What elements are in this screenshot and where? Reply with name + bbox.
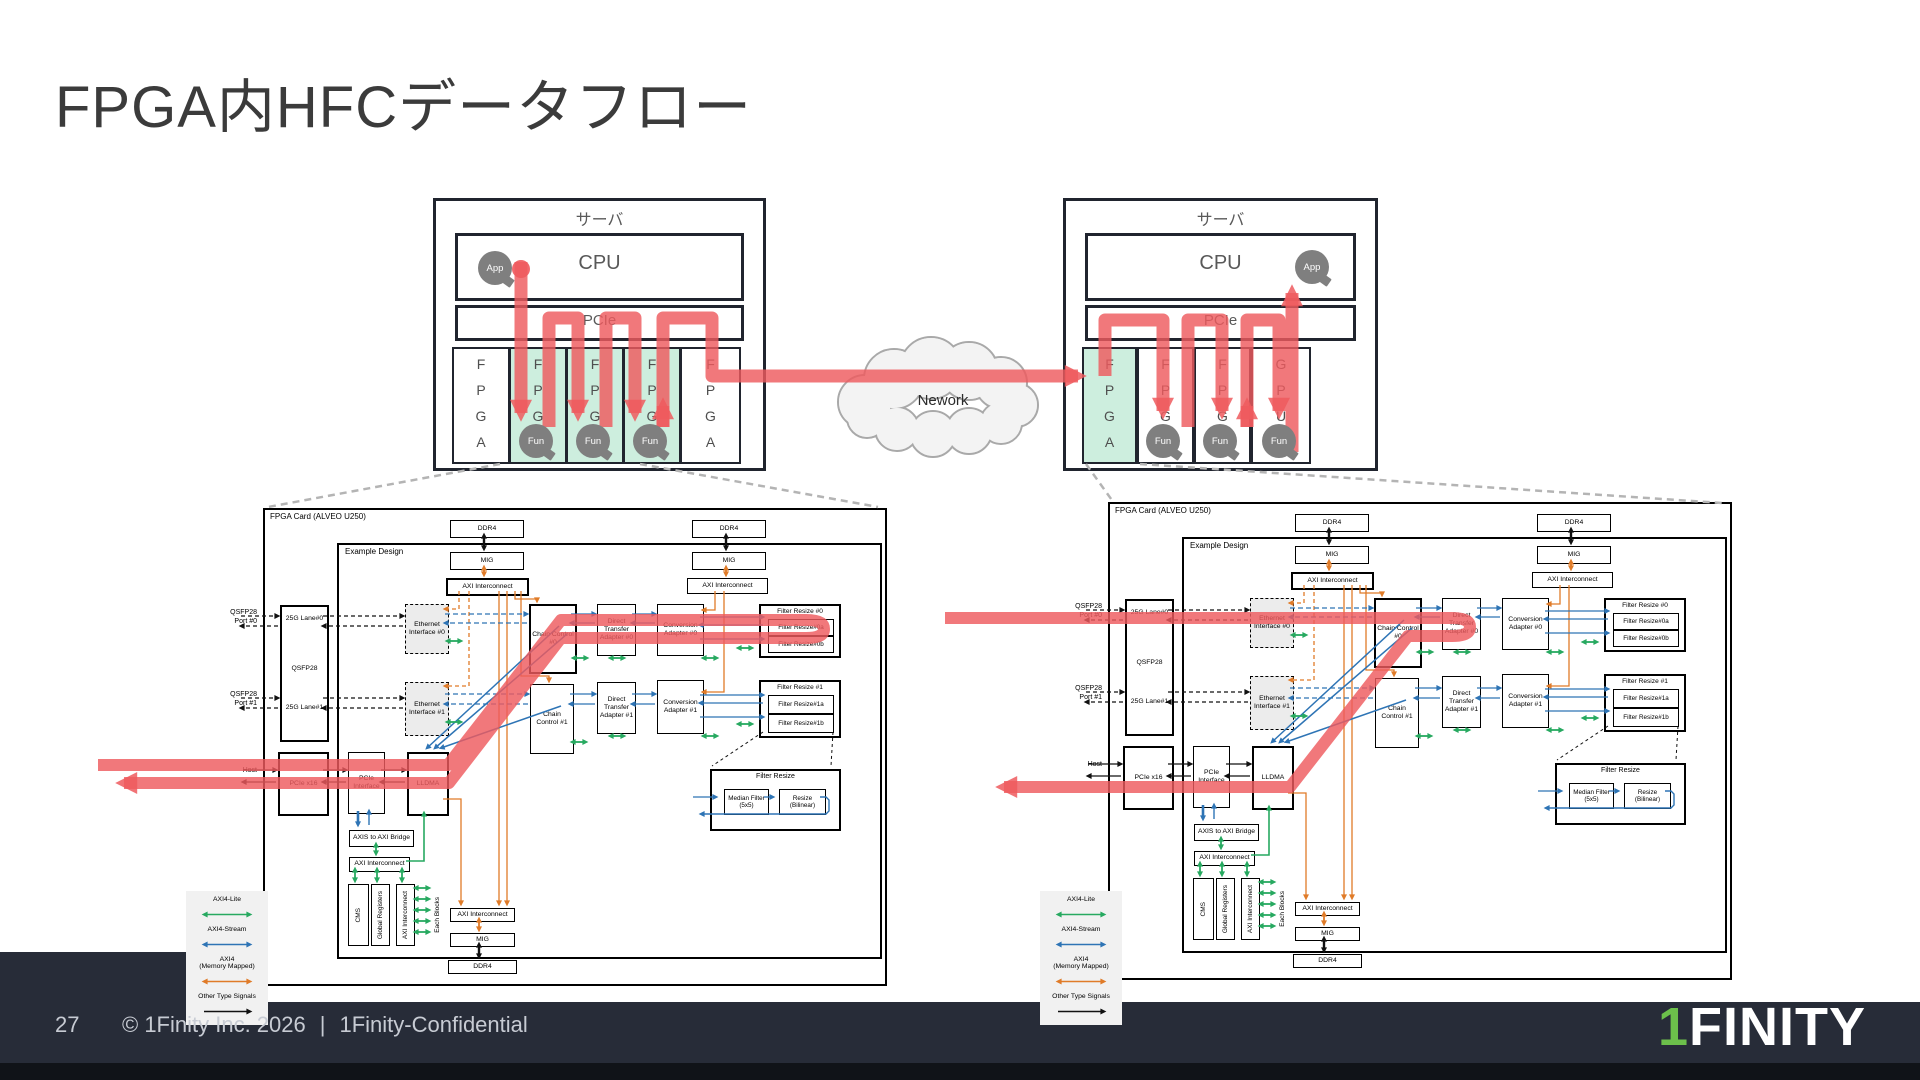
block-label: AXI Interconnect: [701, 582, 753, 590]
block-label: Chain Control #0: [1376, 625, 1420, 641]
block-label: MIG: [1567, 551, 1582, 559]
block-eth1: Ethernet Interface #1: [1250, 676, 1294, 730]
fun-label: Fun: [585, 436, 601, 447]
fun-bubble-left-2: Fun: [633, 424, 667, 458]
card-label: F P G A: [1084, 349, 1135, 455]
block-qsfp: 25G Lane#0QSFP2825G Lane#1: [1125, 599, 1174, 736]
block-label: AXIS to AXI Bridge: [1197, 828, 1256, 836]
block-label: AXI Interconnect: [1198, 854, 1250, 862]
legend-arrow-mo: [1052, 973, 1110, 991]
qsfp-port1-label: QSFP28 Port #1: [201, 690, 257, 712]
block-eth0: Ethernet Interface #0: [405, 604, 449, 654]
block-axibot: AXI Interconnect: [1295, 902, 1360, 916]
fun-label: Fun: [642, 436, 658, 447]
block-mig_a: MIG: [1295, 546, 1369, 564]
block-greg: Global Registers: [1216, 878, 1235, 940]
qsfp-lane0-label: 25G Lane#0: [1127, 609, 1172, 617]
qsfp-port1-label: QSFP28 Port #1: [1046, 684, 1102, 706]
legend-item-label: AXI4-Stream: [1062, 926, 1101, 934]
qsfp-label: QSFP28: [282, 665, 327, 673]
block-dta0: Direct Transfer Adapter #0: [597, 604, 636, 656]
block-ca0: Conversion Adapter #0: [657, 604, 704, 656]
sub-block-a: Filter Resize#0a: [1613, 613, 1679, 630]
block-fr0: Filter Resize #0Filter Resize#0aFilter R…: [1604, 598, 1686, 652]
median-filter-block: Median Filter (5x5): [1569, 783, 1614, 809]
block-axih: AXI Interconnect: [349, 857, 410, 872]
pcie-box-right: PCIe: [1085, 305, 1356, 341]
block-detail: Filter ResizeMedian Filter (5x5)Resize (…: [1555, 763, 1686, 825]
pcie-label: PCIe: [458, 312, 741, 329]
block-pcieif: PCIe Interface: [348, 752, 385, 814]
block-bridge: AXIS to AXI Bridge: [1194, 824, 1259, 841]
block-pciex16: PCIe x16: [1123, 746, 1174, 810]
block-label: Direct Transfer Adapter #0: [1443, 612, 1480, 636]
sub-block-b: Filter Resize#1b: [768, 714, 834, 733]
block-eachblk: Each Blocks: [1276, 880, 1290, 938]
block-axiv: AXI Interconnect: [396, 884, 415, 946]
filter-resize-title: Filter Resize #0: [761, 608, 839, 616]
block-axih: AXI Interconnect: [1194, 851, 1255, 866]
card-label: G P U: [1253, 349, 1309, 429]
block-axi_b: AXI Interconnect: [1532, 572, 1613, 588]
block-label: Conversion Adapter #1: [1503, 693, 1548, 709]
block-label: Ethernet Interface #1: [1251, 695, 1293, 711]
fpga-card-title: FPGA Card (ALVEO U250): [1115, 506, 1211, 515]
fpga-card-title: FPGA Card (ALVEO U250): [270, 512, 366, 521]
accelerator-card-left-4: F P G A: [680, 347, 741, 464]
pcie-box-left: PCIe: [455, 305, 744, 341]
footer-text: © 1Finity Inc. 2026 | 1Finity-Confidenti…: [122, 1012, 528, 1038]
sub-block-b: Filter Resize#0b: [1613, 630, 1679, 647]
slide-canvas: FPGA内HFCデータフロー サーバCPUPCIeF P G AF P G AF…: [0, 0, 1920, 1080]
block-fr0: Filter Resize #0Filter Resize#0aFilter R…: [759, 604, 841, 658]
block-ddr4_a: DDR4: [450, 520, 524, 538]
filter-resize-detail-title: Filter Resize: [1557, 767, 1684, 775]
block-label: Chain Control #1: [531, 711, 573, 727]
block-label: PCIe Interface: [1194, 769, 1229, 785]
app-bubble-left: App: [478, 251, 512, 285]
block-pcieif: PCIe Interface: [1193, 746, 1230, 808]
host-label: Host: [1060, 760, 1102, 772]
block-label: MIG: [480, 557, 495, 565]
vertical-label: Global Registers: [377, 891, 385, 939]
diagram-stage: サーバCPUPCIeF P G AF P G AF P G AF P G AF …: [0, 0, 1920, 1080]
block-ddr4_b: DDR4: [692, 520, 766, 538]
block-mig_b: MIG: [692, 552, 766, 570]
resize-block: Resize (Bilinear): [1624, 783, 1671, 809]
block-label: DDR4: [719, 525, 740, 533]
block-label: Ethernet Interface #0: [1251, 615, 1293, 631]
app-label: App: [1304, 262, 1321, 273]
block-eth1: Ethernet Interface #1: [405, 682, 449, 736]
block-cms: CMS: [348, 884, 369, 946]
app-injection-dot: [512, 260, 530, 278]
block-label: DDR4: [472, 963, 493, 971]
block-label: Chain Control #1: [1376, 705, 1418, 721]
block-qsfp: 25G Lane#0QSFP2825G Lane#1: [280, 605, 329, 742]
vertical-label: AXI Interconnect: [1247, 885, 1255, 933]
copyright-text: © 1Finity Inc. 2026: [122, 1012, 306, 1038]
host-label: Host: [215, 766, 257, 778]
qsfp-lane1-label: 25G Lane#1: [1127, 698, 1172, 706]
qsfp-lane1-label: 25G Lane#1: [282, 704, 327, 712]
filter-resize-title: Filter Resize #1: [1606, 678, 1684, 686]
qsfp-label: QSFP28: [1127, 659, 1172, 667]
pcie-label: PCIe: [1088, 312, 1353, 329]
block-label: PCIe x16: [289, 780, 319, 788]
accelerator-card-left-0: F P G A: [452, 347, 510, 464]
block-label: AXI Interconnect: [1301, 905, 1353, 913]
sub-block-b: Filter Resize#0b: [768, 636, 834, 653]
block-label: LLDMA: [1261, 774, 1286, 782]
block-label: AXI Interconnect: [456, 911, 508, 919]
block-label: MIG: [475, 936, 490, 944]
block-label: AXI Interconnect: [1306, 577, 1358, 585]
company-logo: 1FINITY: [1658, 996, 1866, 1058]
legend-arrow-mg: [1052, 906, 1110, 924]
example-design-title: Example Design: [1190, 541, 1248, 550]
legend-arrow-mo: [198, 973, 256, 991]
fun-bubble-left-1: Fun: [576, 424, 610, 458]
block-label: DDR4: [1317, 957, 1338, 965]
block-label: Chain Control #0: [531, 631, 575, 647]
legend-item-label: AXI4-Stream: [208, 926, 247, 934]
qsfp-lane0-label: 25G Lane#0: [282, 615, 327, 623]
fun-label: Fun: [1271, 436, 1287, 447]
block-label: Conversion Adapter #0: [1503, 616, 1548, 632]
filter-resize-detail-title: Filter Resize: [712, 773, 839, 781]
block-label: AXI Interconnect: [1546, 576, 1598, 584]
legend-arrow-mk: [1052, 1003, 1110, 1021]
legend-arrow-mg: [198, 906, 256, 924]
legend-item-label: AXI4 (Memory Mapped): [1053, 956, 1109, 972]
block-mig_a: MIG: [450, 552, 524, 570]
signal-legend-right: AXI4-LiteAXI4-StreamAXI4 (Memory Mapped)…: [1040, 891, 1122, 1025]
network-cloud-label: Nework: [893, 392, 993, 409]
block-label: AXI Interconnect: [353, 860, 405, 868]
block-label: DDR4: [1322, 519, 1343, 527]
block-eth0: Ethernet Interface #0: [1250, 598, 1294, 648]
logo-rest: FINITY: [1689, 997, 1866, 1057]
block-ddr4_b: DDR4: [1537, 514, 1611, 532]
example-design-title: Example Design: [345, 547, 403, 556]
confidential-text: 1Finity-Confidential: [339, 1012, 527, 1038]
block-label: PCIe x16: [1134, 774, 1164, 782]
block-axi_a: AXI Interconnect: [446, 578, 529, 596]
card-label: F P G A: [454, 349, 508, 455]
block-migbot: MIG: [1295, 927, 1360, 941]
block-label: Direct Transfer Adapter #1: [1443, 690, 1480, 714]
filter-resize-title: Filter Resize #0: [1606, 602, 1684, 610]
accelerator-card-right-0: F P G A: [1082, 347, 1137, 464]
page-number: 27: [55, 1012, 79, 1038]
card-label: F P G A: [682, 349, 739, 455]
block-cc1: Chain Control #1: [530, 684, 574, 754]
block-eachblk: Each Blocks: [431, 886, 445, 944]
vertical-label: Each Blocks: [1279, 891, 1287, 927]
block-greg: Global Registers: [371, 884, 390, 946]
fun-label: Fun: [1155, 436, 1171, 447]
block-lldma: LLDMA: [1252, 746, 1294, 810]
block-cms: CMS: [1193, 878, 1214, 940]
block-dta1: Direct Transfer Adapter #1: [597, 682, 636, 734]
block-label: MIG: [1325, 551, 1340, 559]
block-label: LLDMA: [416, 780, 441, 788]
block-label: DDR4: [477, 525, 498, 533]
block-label: Conversion Adapter #1: [658, 699, 703, 715]
fun-bubble-right-1: Fun: [1203, 424, 1237, 458]
block-bridge: AXIS to AXI Bridge: [349, 830, 414, 847]
block-label: MIG: [1320, 930, 1335, 938]
legend-item-label: AXI4-Lite: [1067, 896, 1095, 904]
resize-block: Resize (Bilinear): [779, 789, 826, 815]
block-cc0: Chain Control #0: [1374, 598, 1422, 668]
block-ca1: Conversion Adapter #1: [657, 680, 704, 734]
block-migbot: MIG: [450, 933, 515, 947]
block-mig_b: MIG: [1537, 546, 1611, 564]
block-cc1: Chain Control #1: [1375, 678, 1419, 748]
legend-item-label: AXI4-Lite: [213, 896, 241, 904]
median-filter-block: Median Filter (5x5): [724, 789, 769, 815]
block-fr1: Filter Resize #1Filter Resize#1aFilter R…: [759, 680, 841, 738]
legend-item-label: Other Type Signals: [1052, 993, 1110, 1001]
sub-block-a: Filter Resize#0a: [768, 619, 834, 636]
fun-bubble-right-2: Fun: [1262, 424, 1296, 458]
block-label: Conversion Adapter #0: [658, 622, 703, 638]
qsfp-port0-label: QSFP28 Port #0: [201, 608, 257, 630]
signal-legend-left: AXI4-LiteAXI4-StreamAXI4 (Memory Mapped)…: [186, 891, 268, 1025]
fun-bubble-right-0: Fun: [1146, 424, 1180, 458]
vertical-label: CMS: [355, 908, 363, 922]
fun-label: Fun: [528, 436, 544, 447]
legend-arrow-mb: [1052, 936, 1110, 954]
block-ca1: Conversion Adapter #1: [1502, 674, 1549, 728]
block-lldma: LLDMA: [407, 752, 449, 816]
footer-bottom-strip: [0, 1063, 1920, 1080]
vertical-label: Global Registers: [1222, 885, 1230, 933]
server-title: サーバ: [436, 206, 763, 230]
fpga-card-diagram-right: FPGA Card (ALVEO U250)Example DesignDDR4…: [1108, 502, 1732, 980]
block-axibot: AXI Interconnect: [450, 908, 515, 922]
app-label: App: [487, 263, 504, 274]
block-label: Direct Transfer Adapter #1: [598, 696, 635, 720]
sub-block-a: Filter Resize#1a: [768, 695, 834, 714]
block-fr1: Filter Resize #1Filter Resize#1aFilter R…: [1604, 674, 1686, 732]
block-axi_b: AXI Interconnect: [687, 578, 768, 594]
block-axi_a: AXI Interconnect: [1291, 572, 1374, 590]
app-bubble-right: App: [1295, 250, 1329, 284]
fun-label: Fun: [1212, 436, 1228, 447]
fun-bubble-left-0: Fun: [519, 424, 553, 458]
block-label: MIG: [722, 557, 737, 565]
block-label: AXIS to AXI Bridge: [352, 834, 411, 842]
block-label: Direct Transfer Adapter #0: [598, 618, 635, 642]
sub-block-b: Filter Resize#1b: [1613, 708, 1679, 727]
legend-item-label: AXI4 (Memory Mapped): [199, 956, 255, 972]
block-ddr4_a: DDR4: [1295, 514, 1369, 532]
fpga-card-diagram-left: FPGA Card (ALVEO U250)Example DesignDDR4…: [263, 508, 887, 986]
block-label: Ethernet Interface #0: [406, 621, 448, 637]
block-detail: Filter ResizeMedian Filter (5x5)Resize (…: [710, 769, 841, 831]
block-label: DDR4: [1564, 519, 1585, 527]
vertical-label: AXI Interconnect: [402, 891, 410, 939]
block-axiv: AXI Interconnect: [1241, 878, 1260, 940]
block-ca0: Conversion Adapter #0: [1502, 598, 1549, 650]
server-title: サーバ: [1066, 206, 1375, 230]
sub-block-a: Filter Resize#1a: [1613, 689, 1679, 708]
block-pciex16: PCIe x16: [278, 752, 329, 816]
block-ddrbot: DDR4: [448, 960, 517, 974]
block-label: Ethernet Interface #1: [406, 701, 448, 717]
legend-item-label: Other Type Signals: [198, 993, 256, 1001]
block-label: AXI Interconnect: [461, 583, 513, 591]
legend-arrow-mb: [198, 936, 256, 954]
block-label: PCIe Interface: [349, 775, 384, 791]
footer-divider: |: [320, 1012, 326, 1038]
block-dta1: Direct Transfer Adapter #1: [1442, 676, 1481, 728]
logo-prefix: 1: [1658, 997, 1689, 1057]
block-dta0: Direct Transfer Adapter #0: [1442, 598, 1481, 650]
block-cc0: Chain Control #0: [529, 604, 577, 674]
vertical-label: Each Blocks: [434, 897, 442, 933]
qsfp-port0-label: QSFP28 Port #0: [1046, 602, 1102, 624]
vertical-label: CMS: [1200, 902, 1208, 916]
filter-resize-title: Filter Resize #1: [761, 684, 839, 692]
block-ddrbot: DDR4: [1293, 954, 1362, 968]
